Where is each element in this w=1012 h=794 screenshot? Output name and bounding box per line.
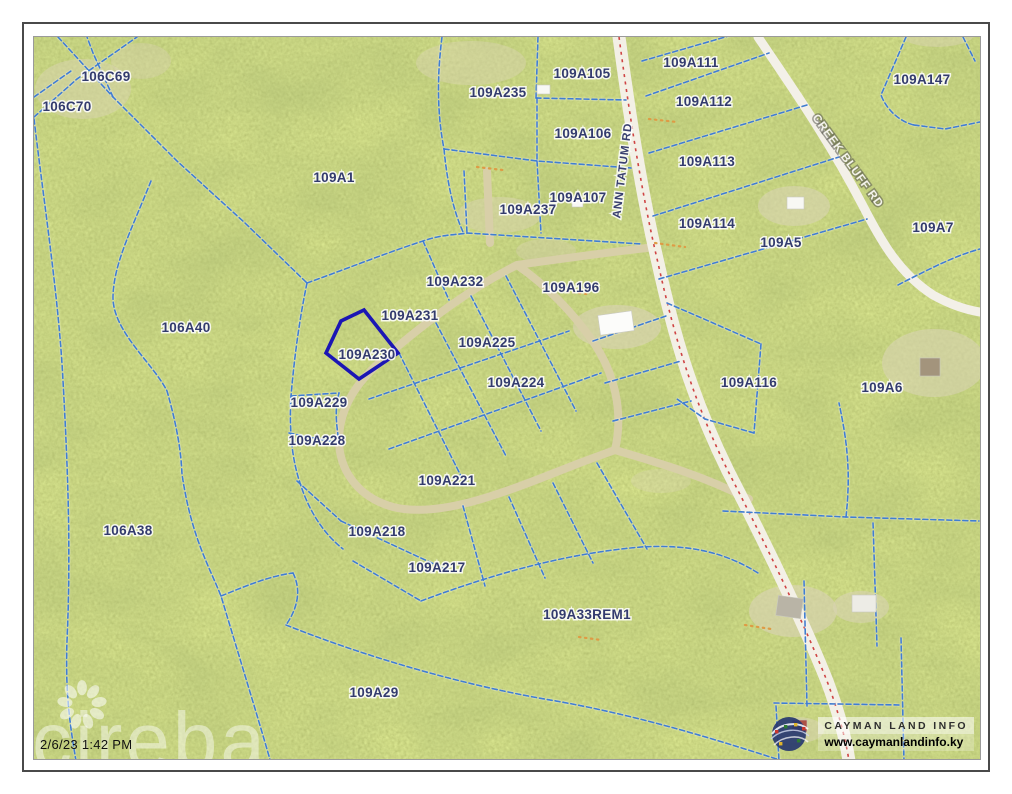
parcel-label: 109A112 xyxy=(676,94,732,109)
cayman-land-info-logo: CAYMAN LAND INFO www.caymanlandinfo.ky xyxy=(764,709,974,759)
parcel-label: 106A38 xyxy=(103,523,152,538)
parcel-label: 106C69 xyxy=(81,69,130,84)
parcel-label: 109A232 xyxy=(427,274,484,289)
parcel-label: 109A237 xyxy=(500,202,557,217)
parcel-label: 109A116 xyxy=(721,375,777,390)
map-image: 106C69 106C70 109A1 106A40 109A235 109A1… xyxy=(34,37,980,759)
parcel-label: 109A221 xyxy=(419,473,476,488)
timestamp: 2/6/23 1:42 PM xyxy=(40,737,132,752)
parcel-label: 109A107 xyxy=(550,190,607,205)
parcel-label: 109A111 xyxy=(663,55,719,70)
parcel-label: 109A224 xyxy=(488,375,545,390)
logo-title: CAYMAN LAND INFO xyxy=(818,717,974,734)
map-canvas[interactable]: 106C69 106C70 109A1 106A40 109A235 109A1… xyxy=(33,36,981,760)
parcel-label: 109A6 xyxy=(861,380,902,395)
parcel-label: 109A113 xyxy=(679,154,735,169)
parcel-label: 109A5 xyxy=(760,235,801,250)
parcel-label: 109A114 xyxy=(679,216,735,231)
parcel-label: 109A196 xyxy=(543,280,600,295)
parcel-label: 109A106 xyxy=(555,126,612,141)
selected-parcel-label: 109A230 xyxy=(339,347,396,362)
parcel-label: 109A217 xyxy=(409,560,466,575)
parcel-label: 109A105 xyxy=(554,66,611,81)
parcel-label: 109A218 xyxy=(349,524,406,539)
globe-icon xyxy=(764,709,814,759)
parcel-label: 109A33REM1 xyxy=(543,607,631,622)
parcel-label: 109A7 xyxy=(912,220,953,235)
parcel-label: 109A29 xyxy=(349,685,398,700)
parcel-label: 109A235 xyxy=(470,85,527,100)
map-document: 106C69 106C70 109A1 106A40 109A235 109A1… xyxy=(0,0,1012,794)
parcel-label: 106A40 xyxy=(161,320,210,335)
parcel-label: 109A225 xyxy=(459,335,516,350)
logo-url-link[interactable]: www.caymanlandinfo.ky xyxy=(818,734,974,751)
parcel-label: 109A231 xyxy=(382,308,439,323)
parcel-label: 109A1 xyxy=(313,170,354,185)
parcel-label: 109A147 xyxy=(894,72,951,87)
parcel-label: 109A229 xyxy=(291,395,348,410)
parcel-label: 109A228 xyxy=(289,433,346,448)
parcel-label: 106C70 xyxy=(42,99,91,114)
